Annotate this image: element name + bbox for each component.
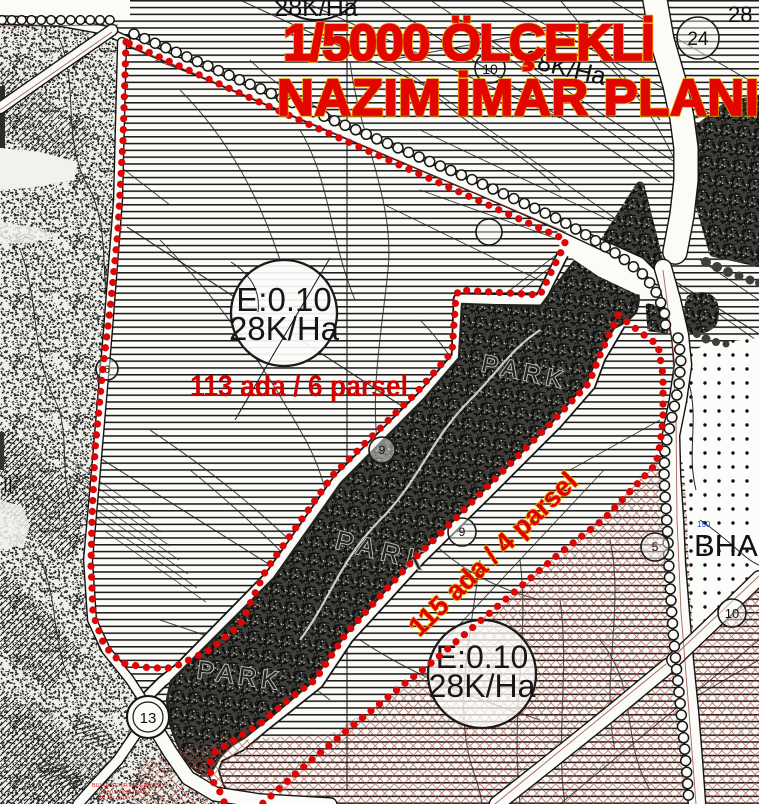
- svg-text:28: 28: [728, 2, 752, 27]
- svg-text:113 ada / 6 parsel: 113 ada / 6 parsel: [190, 370, 408, 403]
- svg-text:28K/Ha: 28K/Ha: [429, 668, 536, 704]
- svg-text:10: 10: [725, 606, 739, 621]
- svg-text:BUYUKSEHIR BELEDIYESI: BUYUKSEHIR BELEDIYESI: [92, 783, 162, 789]
- svg-text:13: 13: [140, 710, 157, 727]
- svg-text:BHA: BHA: [694, 528, 758, 563]
- svg-text:PLAN ONAYI: PLAN ONAYI: [100, 796, 133, 802]
- svg-text:9: 9: [459, 525, 466, 539]
- svg-text:150: 150: [697, 520, 711, 529]
- svg-text:28K/Ha: 28K/Ha: [229, 310, 340, 347]
- svg-text:II: II: [3, 476, 13, 496]
- svg-text:24: 24: [687, 29, 709, 50]
- svg-text:1/5000 ÖLÇEKLİ: 1/5000 ÖLÇEKLİ: [283, 14, 655, 71]
- svg-text:9: 9: [379, 443, 386, 457]
- svg-text:5: 5: [652, 540, 659, 554]
- svg-text:NAZIM İMAR PLANI: NAZIM İMAR PLANI: [277, 69, 759, 126]
